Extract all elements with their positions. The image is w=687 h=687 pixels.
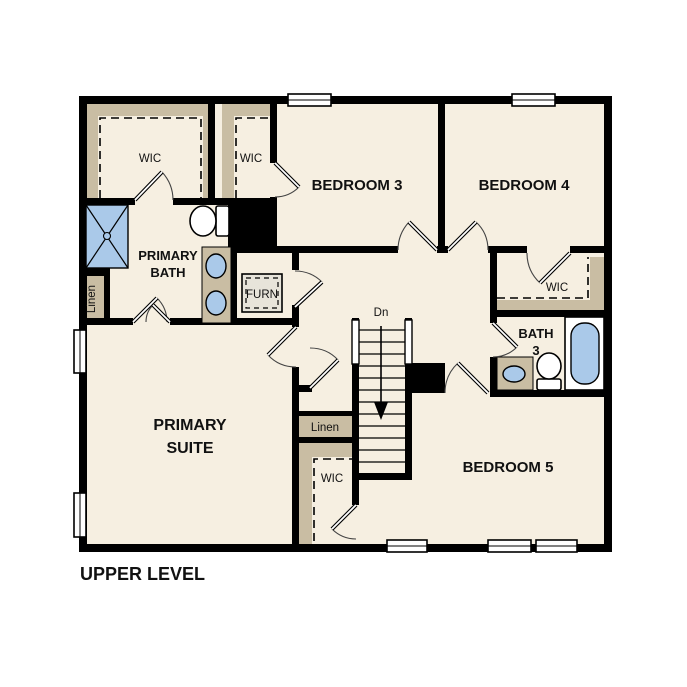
toilet-bath3 xyxy=(537,353,561,390)
label-wic-bedroom5: WIC xyxy=(321,473,343,485)
window-bedroom3 xyxy=(288,94,331,106)
shower-drain-icon xyxy=(104,233,111,240)
floor-area xyxy=(87,104,604,544)
window-suite-upper xyxy=(74,330,86,373)
shower xyxy=(86,205,128,268)
stair-stringer-left xyxy=(352,320,359,364)
label-furnace: FURN xyxy=(246,289,278,301)
label-primary-suite-1: PRIMARY xyxy=(153,417,227,434)
wall-exterior-bottom xyxy=(79,544,612,552)
label-primary-bath-1: PRIMARY xyxy=(138,248,198,263)
sink-icon xyxy=(206,291,226,315)
toilet-primary-bath xyxy=(190,206,229,236)
chase-bath xyxy=(228,203,273,247)
label-wic-bedroom4: WIC xyxy=(546,282,568,294)
label-wic-primary: WIC xyxy=(139,153,161,165)
floor-plan-drawing: WIC WIC BEDROOM 3 BEDROOM 4 PRIMARY BATH… xyxy=(0,0,687,687)
window-bedroom5-left xyxy=(387,540,427,552)
sink-icon xyxy=(503,366,525,382)
label-primary-bath-2: BATH xyxy=(150,265,185,280)
window-bedroom4 xyxy=(512,94,555,106)
window-suite-lower xyxy=(74,493,86,537)
vanity-primary-bath xyxy=(202,247,231,323)
vanity-bath3 xyxy=(497,357,533,390)
sink-icon xyxy=(206,254,226,278)
label-linen-upper: Linen xyxy=(86,285,98,313)
window-bedroom5-right xyxy=(536,540,577,552)
label-bedroom4: BEDROOM 4 xyxy=(479,177,571,194)
label-wic-hall: WIC xyxy=(240,153,262,165)
label-bedroom3: BEDROOM 3 xyxy=(312,177,403,194)
bathtub-bath3 xyxy=(565,317,604,390)
page-title: UPPER LEVEL xyxy=(80,564,205,584)
label-stairs-dn: Dn xyxy=(374,307,389,319)
label-primary-suite-2: SUITE xyxy=(166,440,213,457)
label-bath3-1: BATH xyxy=(518,326,553,341)
label-linen-lower: Linen xyxy=(311,422,339,434)
label-bedroom5: BEDROOM 5 xyxy=(463,459,554,476)
wall-exterior-left xyxy=(79,96,87,552)
floor-plan-page: WIC WIC BEDROOM 3 BEDROOM 4 PRIMARY BATH… xyxy=(0,0,687,687)
wall-exterior-right xyxy=(604,96,612,552)
stair-stringer-right xyxy=(405,320,412,364)
label-bath3-2: 3 xyxy=(532,343,539,358)
chase-stairs xyxy=(412,363,445,393)
window-bedroom5-mid xyxy=(488,540,531,552)
